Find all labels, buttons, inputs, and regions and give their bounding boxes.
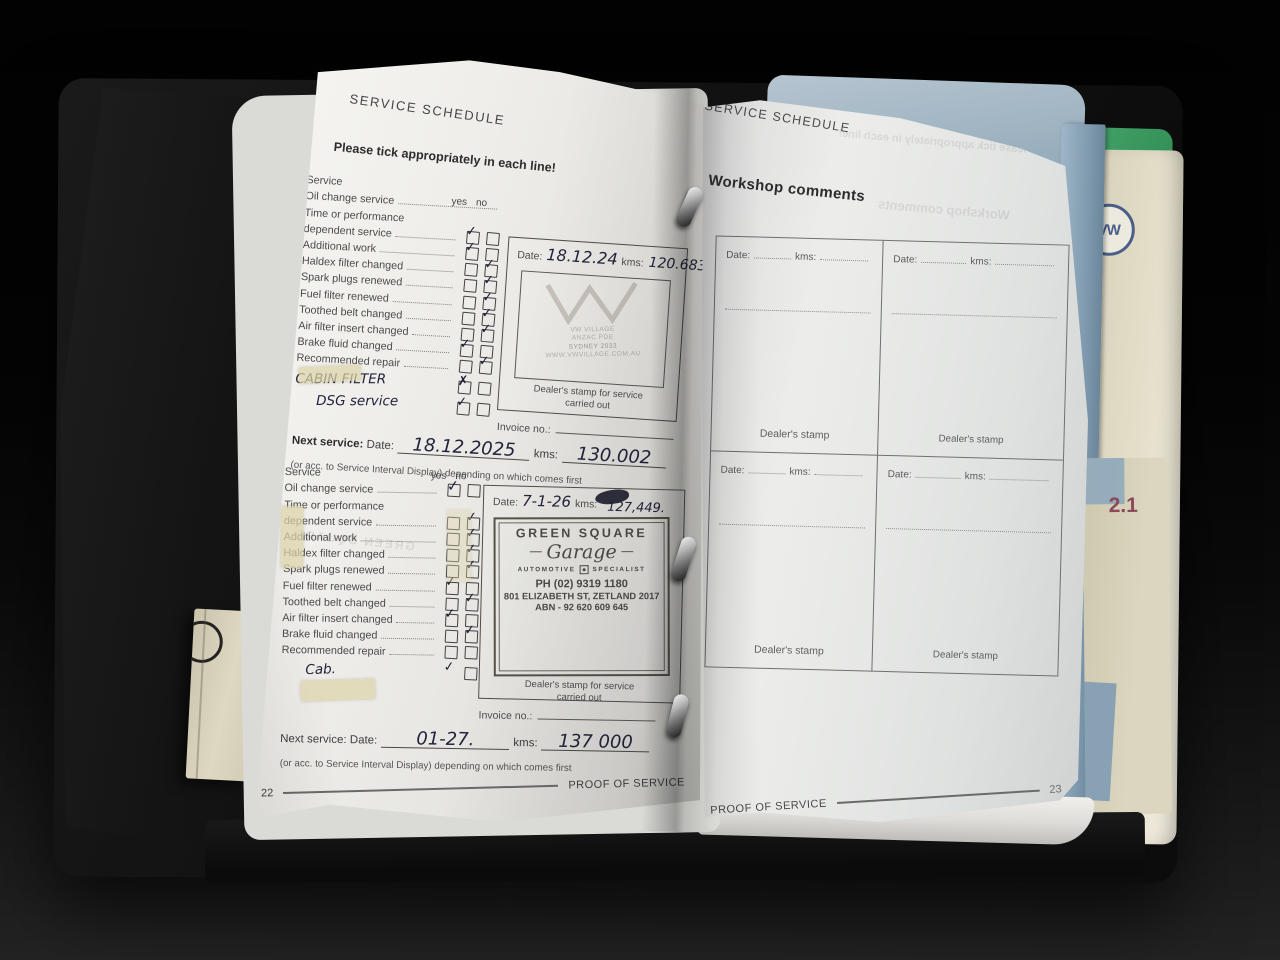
dotted-blank <box>995 256 1054 267</box>
dotted-leader <box>376 580 435 591</box>
next-kms-blank: 130.002 <box>562 447 667 469</box>
left-page: SERVICE SCHEDULE Please tick appropriate… <box>243 58 705 840</box>
dotted-leader <box>389 548 436 559</box>
date-label: Date: <box>517 249 543 263</box>
kms-handwritten: 127,449. <box>607 500 665 516</box>
right-page: SERVICE SCHEDULE Workshop comments Pleas… <box>688 92 1088 840</box>
kms-label: kms: <box>621 256 644 269</box>
row-label: Brake fluid changed <box>282 628 378 642</box>
dotted-blank <box>990 471 1049 482</box>
stamp-business-name: GREEN SQUARE <box>496 526 668 540</box>
yes-tick: ✓ <box>459 337 471 353</box>
service-block-1: yes no Service Oil change service Time o… <box>294 170 727 429</box>
no-tick: ✓ <box>482 289 494 305</box>
dotted-leader <box>412 325 450 337</box>
service-row: Oil change service✓ <box>284 478 480 498</box>
row-label: Fuel filter renewed <box>283 579 372 593</box>
next-kms-blank: 137 000 <box>541 735 649 753</box>
invoice-blank <box>537 708 655 721</box>
stamp-line: ANZAC PDE <box>572 334 614 342</box>
footer-rule <box>283 785 558 793</box>
booklet-section-number: 2.1 <box>1109 494 1138 518</box>
yes-tick: ✓ <box>446 477 460 496</box>
yes-checkbox: ✓ <box>465 247 479 261</box>
yes-checkbox: ✗ <box>458 381 472 395</box>
stamp-square-icon <box>580 565 589 574</box>
page-number: 22 <box>261 787 274 799</box>
kms-label: kms: <box>965 471 986 483</box>
yes-label: yes <box>451 196 467 208</box>
date-handwritten: 18.12.24 <box>546 245 618 269</box>
handwritten-note: DSG service <box>316 393 398 409</box>
yes-checkbox <box>464 263 478 277</box>
dotted-leader <box>397 613 435 624</box>
section-booklet-spine: 2.1 <box>1082 458 1172 815</box>
row-label: Air filter insert changed <box>282 612 393 626</box>
dotted-blank-line <box>892 305 1057 318</box>
no-tick: ✓ <box>464 590 476 606</box>
no-tick: ✓ <box>464 623 476 639</box>
next-service-label: Next service: <box>292 435 364 451</box>
next-kms-label: kms: <box>513 737 537 749</box>
next-kms-handwritten: 130.002 <box>576 444 651 469</box>
yes-checkbox: ✓ <box>456 402 470 416</box>
left-page-footer: 22 PROOF OF SERVICE <box>261 776 685 799</box>
yes-tick: ✗ <box>457 374 469 390</box>
no-label: no <box>476 197 488 209</box>
yes-tick: ✓ <box>466 224 478 240</box>
proof-of-service-label: PROOF OF SERVICE <box>568 776 685 791</box>
stamp-line: SYDNEY 2033 <box>569 342 618 350</box>
dotted-leader <box>389 645 433 656</box>
dealer-stamp-label: Dealer's stamp <box>873 648 1058 664</box>
page-number: 23 <box>1049 783 1062 796</box>
dotted-blank <box>748 464 785 474</box>
no-checkbox: ✓ <box>465 630 479 644</box>
kms-handwritten: 120.683 <box>648 255 707 275</box>
no-checkbox <box>464 667 478 681</box>
dotted-leader <box>397 340 450 353</box>
no-checkbox: ✓ <box>480 329 494 343</box>
stamp-tagline-right: SPECIALIST <box>593 566 646 573</box>
next-kms-handwritten: 137 000 <box>558 731 633 753</box>
no-checkbox <box>464 646 478 660</box>
no-tick: ✓ <box>484 257 496 273</box>
dotted-leader <box>404 357 449 369</box>
dealer-stamp-label: Dealer's stamp <box>879 432 1064 448</box>
yes-checkbox <box>461 311 475 325</box>
yes-tick: ✓ <box>444 606 456 622</box>
stamp-tagline-left: AUTOMOTIVE <box>518 566 576 573</box>
row-label: Toothed belt changed <box>282 596 385 610</box>
kms-label: kms: <box>575 498 597 511</box>
dotted-leader <box>388 564 435 575</box>
yes-label: yes <box>431 471 447 482</box>
stamp-line: WWW.VWVILLAGE.COM.AU <box>545 350 640 359</box>
yes-checkbox <box>445 630 459 644</box>
invoice-line: Invoice no.: <box>497 419 674 443</box>
tape-patch <box>299 364 362 383</box>
dotted-leader <box>361 531 436 542</box>
row-label: Service <box>306 174 343 188</box>
dotted-blank-line <box>719 516 865 529</box>
kms-label: kms: <box>795 252 816 264</box>
left-page-header: SERVICE SCHEDULE <box>349 91 506 128</box>
comment-cell: Date:kms: Dealer's stamp <box>873 456 1063 676</box>
date-label: Date: <box>888 469 912 481</box>
dealer-stamp-label: Dealer's stamp <box>706 642 872 658</box>
service-book-photo: VW 2.1 SERVICE SCHEDULE Please tick appr… <box>0 0 1280 960</box>
yes-checkbox: ✓ <box>445 613 459 627</box>
dotted-leader <box>377 483 436 494</box>
vw-w-mark-icon <box>540 279 645 325</box>
stamp-abn: ABN - 92 620 609 645 <box>496 602 668 612</box>
dotted-leader <box>380 242 455 256</box>
yes-checkbox <box>462 295 476 309</box>
no-checkbox <box>477 382 491 396</box>
next-date-blank: 18.12.2025 <box>398 438 531 461</box>
stamp-line: VW VILLAGE <box>570 325 615 333</box>
dotted-leader <box>381 629 434 640</box>
dotted-leader <box>376 515 436 526</box>
kms-label: kms: <box>789 466 810 478</box>
next-date-blank: 01-27. <box>381 732 509 750</box>
next-service-label: Next service: <box>280 733 347 746</box>
workshop-comments-title: Workshop comments <box>708 172 866 205</box>
dotted-leader <box>406 276 453 289</box>
yes-checkbox: ✓ <box>445 581 459 595</box>
footer-rule <box>837 790 1040 804</box>
tape-patch <box>447 510 471 582</box>
dealer-stamp-label: Dealer's stamp <box>711 426 877 442</box>
service-record-box: Date: 18.12.24 kms: 120.683 VW VILLAGE A… <box>497 236 688 422</box>
vw-dealer-stamp: VW VILLAGE ANZAC PDE SYDNEY 2033 WWW.VWV… <box>517 275 667 384</box>
no-tick: ✓ <box>483 273 495 289</box>
dotted-leader <box>406 308 451 320</box>
invoice-blank <box>555 422 673 440</box>
date-label: Date: <box>893 254 917 266</box>
row-label: Service <box>285 466 321 479</box>
handwritten-note: Cab. <box>305 661 336 678</box>
next-kms-label: kms: <box>533 448 558 461</box>
dealer-stamp-area: VW VILLAGE ANZAC PDE SYDNEY 2033 WWW.VWV… <box>514 270 671 388</box>
date-label: Date: <box>726 250 750 262</box>
next-date-handwritten: 18.12.2025 <box>412 434 516 461</box>
no-tick: ✓ <box>478 354 490 370</box>
stamp-script-text: Garage <box>546 541 616 563</box>
service-row: Air filter insert changed✓ <box>282 608 478 628</box>
workshop-comments-grid: Date:kms: Dealer's stamp Date:kms: Deale… <box>704 235 1069 676</box>
ink-transfer-ghost: Workshop comments <box>878 196 1011 222</box>
yes-no-header: yes no <box>451 196 487 209</box>
invoice-label: Invoice no.: <box>497 421 551 436</box>
comment-cell: Date:kms: Dealer's stamp <box>705 451 878 670</box>
yes-checkbox: ✓ <box>444 667 458 681</box>
no-checkbox: ✓ <box>479 361 493 375</box>
dotted-blank <box>815 466 863 476</box>
next-date-handwritten: 01-27. <box>416 728 474 750</box>
yes-checkbox <box>444 646 458 660</box>
kms-handwritten-area: 127,449. <box>597 497 657 513</box>
dotted-leader <box>407 260 454 273</box>
no-checkbox <box>467 484 481 498</box>
handwritten-row: Cab.✓ <box>281 656 477 680</box>
dotted-leader <box>396 227 456 240</box>
yes-tick: ✓ <box>465 240 477 256</box>
no-tick: ✓ <box>481 306 493 322</box>
dotted-blank <box>754 249 791 259</box>
yes-checkbox <box>463 279 477 293</box>
yes-checkbox: ✓ <box>447 484 461 498</box>
comment-cell: Date:kms: Dealer's stamp <box>878 241 1068 461</box>
date-label: Date: <box>493 496 518 509</box>
no-checkbox <box>476 403 490 417</box>
stamp-tagline: AUTOMOTIVE SPECIALIST <box>496 565 668 574</box>
interval-footnote: (or acc. to Service Interval Display) de… <box>280 758 572 774</box>
dotted-blank-line <box>725 301 871 314</box>
invoice-label: Invoice no.: <box>479 709 533 722</box>
dotted-blank <box>921 254 966 264</box>
stamp-phone: PH (02) 9319 1180 <box>496 578 668 590</box>
dotted-leader <box>393 292 453 305</box>
dotted-blank <box>820 251 868 261</box>
dotted-leader <box>390 597 435 608</box>
next-date-label: Date: <box>366 439 394 453</box>
next-service-line: Next service: Date: 01-27. kms: 137 000 <box>280 730 654 753</box>
date-handwritten: 7-1-26 <box>522 492 571 511</box>
yes-checkbox <box>459 360 473 374</box>
service-record-box: Date: 7-1-26 kms: 127,449. GREEN SQUARE … <box>478 485 685 704</box>
no-checkbox <box>486 232 500 246</box>
row-label: Recommended repair <box>282 644 386 658</box>
no-tick: ✓ <box>480 322 492 338</box>
yes-tick: ✓ <box>443 660 455 676</box>
service-row: Recommended repair <box>282 640 478 660</box>
invoice-line: Invoice no.: <box>479 707 656 724</box>
comment-cell: Date:kms: Dealer's stamp <box>711 236 884 455</box>
next-date-label: Date: <box>350 734 378 746</box>
no-checkbox: ✓ <box>465 598 479 612</box>
stamp-script-name: — Garage — <box>496 541 668 563</box>
dotted-blank-line <box>886 520 1051 533</box>
kms-label: kms: <box>970 256 991 268</box>
date-label: Date: <box>720 465 744 477</box>
service-block-2: GREEN SQUARE yes no Service Oil change s… <box>281 462 705 685</box>
tape-patch <box>301 679 376 702</box>
stamp-caption: Dealer's stamp for service carried out <box>479 678 680 706</box>
green-square-garage-stamp: GREEN SQUARE — Garage — AUTOMOTIVE SPECI… <box>494 517 670 676</box>
tape-patch <box>281 506 303 568</box>
yes-checkbox: ✓ <box>460 344 474 358</box>
dotted-blank <box>916 469 961 479</box>
stamp-address: 801 ELIZABETH ST, ZETLAND 2017 <box>496 591 668 601</box>
yes-tick: ✓ <box>456 395 468 411</box>
row-label: Oil change service <box>284 482 373 496</box>
